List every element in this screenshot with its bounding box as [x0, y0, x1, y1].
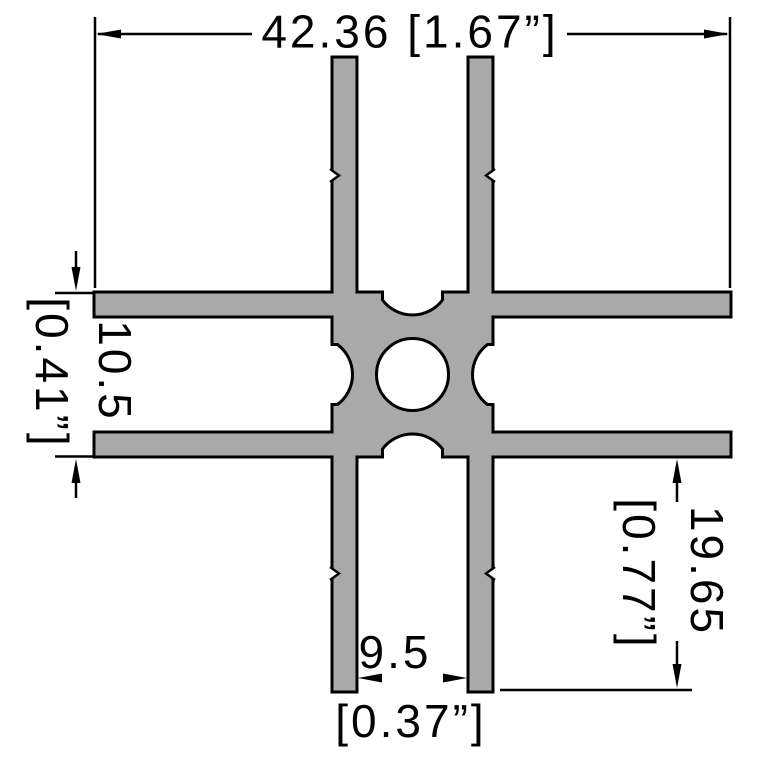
arrowhead-down-icon — [72, 267, 81, 291]
arrowhead-right-icon — [704, 30, 729, 39]
dimension-overall-width: 42.36 [1.67”] — [95, 6, 730, 289]
dimension-label: 42.36 [1.67”] — [261, 6, 558, 58]
dimension-label: 19.65 — [681, 506, 733, 636]
technical-drawing: 42.36 [1.67”] 10.5 [0.41”] 19.65 [0.77”] — [0, 0, 758, 758]
drawing-canvas: 42.36 [1.67”] 10.5 [0.41”] 19.65 [0.77”] — [0, 0, 758, 758]
arrowhead-down-icon — [673, 664, 682, 688]
arrowhead-right-icon — [443, 674, 467, 683]
dimension-label: 9.5 — [359, 626, 432, 678]
dimension-label-inches: [0.41”] — [26, 297, 78, 448]
dimension-leg-depth: 19.65 [0.77”] — [500, 459, 733, 690]
arrowhead-up-icon — [673, 459, 682, 483]
arrowhead-left-icon — [96, 30, 121, 39]
dimension-channel-height: 10.5 [0.41”] — [26, 251, 141, 498]
dimension-label: 10.5 — [89, 320, 141, 422]
dimension-label-inches: [0.37”] — [335, 695, 486, 747]
arrowhead-up-icon — [72, 459, 81, 483]
dimension-label-inches: [0.77”] — [613, 498, 665, 649]
